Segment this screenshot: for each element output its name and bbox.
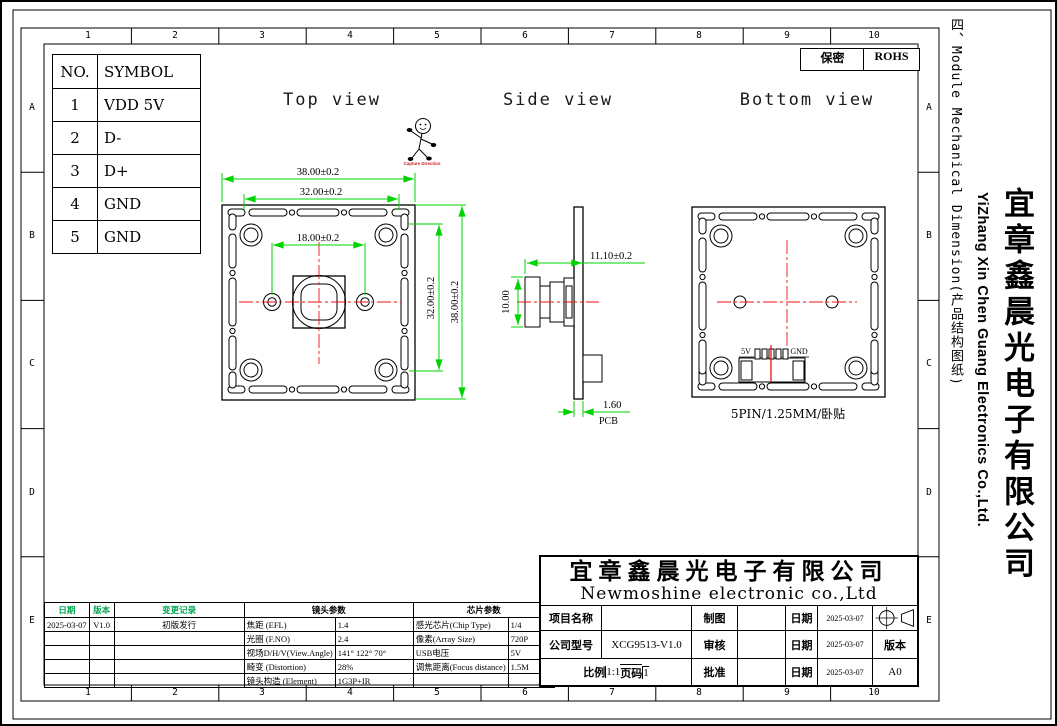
approved-label: 批准 xyxy=(691,658,737,685)
dim-top-width-inner: 32.00±0.2 xyxy=(300,187,343,198)
grid-row-label: C xyxy=(22,357,42,371)
revision-record: 初版发行 xyxy=(114,618,244,632)
model-label: 公司型号 xyxy=(541,630,601,658)
grid-col-label: 4 xyxy=(330,686,370,700)
grid-col-label: 6 xyxy=(505,29,545,43)
project-name-label: 项目名称 xyxy=(541,605,601,630)
pin-table: NO. SYMBOL 1 VDD 5V 2 D- 3 D+ 4 GND 5 GN… xyxy=(52,54,201,254)
dim-side-total-depth: 11.10±0.2 xyxy=(590,251,632,262)
checked-label: 审核 xyxy=(691,630,737,658)
date-value-3: 2025-03-07 xyxy=(817,658,872,685)
date-value-2: 2025-03-07 xyxy=(817,630,872,658)
scale-value: 1:1 xyxy=(605,666,620,678)
date-label-1: 日期 xyxy=(785,605,817,630)
dim-top-height-inner: 32.00±0.2 xyxy=(426,277,437,320)
grid-col-label: 9 xyxy=(767,686,807,700)
lens-param-label: 畸变 (Distortion) xyxy=(244,660,335,674)
revision-parameters-table: 日期 版本 变更记录 镜头参数 芯片参数 2025-03-07 V1.0 初版发… xyxy=(44,602,555,688)
chip-param-label xyxy=(413,674,508,688)
pin-table-row: 1 VDD 5V xyxy=(53,89,201,122)
connector-pin1-label: 5V xyxy=(741,347,751,356)
grid-row-label: B xyxy=(919,229,939,243)
capture-direction-label: Capture Direction xyxy=(404,161,441,166)
pin-symbol: GND xyxy=(98,221,201,254)
pin-symbol: GND xyxy=(98,188,201,221)
grid-col-label: 6 xyxy=(505,686,545,700)
pin-no: 5 xyxy=(53,221,98,254)
pin-no: 4 xyxy=(53,188,98,221)
lens-param-label: 视场D/H/V(View.Angle) xyxy=(244,646,335,660)
grid-col-label: 8 xyxy=(679,29,719,43)
pin-table-row: 5 GND xyxy=(53,221,201,254)
page-label: 页码 xyxy=(620,664,642,681)
bottom-view-title: Bottom view xyxy=(737,90,877,110)
grid-row-label: D xyxy=(919,486,939,500)
drawn-by-value xyxy=(737,605,785,630)
pin-symbol: D- xyxy=(98,122,201,155)
title-block: 宜章鑫晨光电子有限公司 Newmoshine electronic co.,Lt… xyxy=(539,555,919,687)
revision-date: 2025-03-07 xyxy=(45,618,90,632)
grid-col-label: 7 xyxy=(592,29,632,43)
version-value: A0 xyxy=(872,658,917,685)
first-angle-projection-icon xyxy=(873,606,917,630)
revision-version: V1.0 xyxy=(89,618,114,632)
scale-page-cell: 比例 1:1 页码 1 xyxy=(541,658,691,685)
pin-table-header-no: NO. xyxy=(53,55,98,89)
lens-param-value: 141° 122° 70° xyxy=(335,646,413,660)
grid-col-label: 5 xyxy=(417,29,457,43)
grid-row-label: A xyxy=(22,101,42,115)
section-title-vertical: 四、Module Mechanical Dimension(产品结构图纸) xyxy=(946,18,965,386)
grid-row-label: D xyxy=(22,486,42,500)
pin-no: 2 xyxy=(53,122,98,155)
grid-row-label: E xyxy=(22,614,42,628)
revision-date-header: 日期 xyxy=(45,603,90,618)
project-name-value xyxy=(601,605,691,630)
lens-param-label: 镜头构造 (Element) xyxy=(244,674,335,688)
chip-param-label: 调焦距离(Focus distance) xyxy=(413,660,508,674)
pin-table-row: 3 D+ xyxy=(53,155,201,188)
lens-param-value: 28% xyxy=(335,660,413,674)
lens-param-value: 1G3P+IR xyxy=(335,674,413,688)
pin-table-header-symbol: SYMBOL xyxy=(98,55,201,89)
revision-record-header: 变更记录 xyxy=(114,603,244,618)
company-name-en-vertical: YiZhang Xin Chen Guang Electronics Co.,L… xyxy=(974,192,990,527)
chip-param-label: 感光芯片(Chip Type) xyxy=(413,618,508,632)
pin-table-row: 4 GND xyxy=(53,188,201,221)
lens-param-value: 2.4 xyxy=(335,632,413,646)
chip-param-label: 像素(Array Size) xyxy=(413,632,508,646)
lens-params-header: 镜头参数 xyxy=(244,603,413,618)
date-label-2: 日期 xyxy=(785,630,817,658)
dim-top-width-outer: 38.00±0.2 xyxy=(297,167,340,178)
drawing-sheet: Capture Direction xyxy=(0,0,1057,726)
grid-row-label: B xyxy=(22,229,42,243)
grid-col-label: 3 xyxy=(242,686,282,700)
checked-value xyxy=(737,630,785,658)
model-value: XCG9513-V1.0 xyxy=(601,630,691,658)
grid-col-label: 10 xyxy=(854,686,894,700)
pin-no: 3 xyxy=(53,155,98,188)
pin-symbol: VDD 5V xyxy=(98,89,201,122)
company-name-en: Newmoshine electronic co.,Ltd xyxy=(580,585,877,604)
date-value-1: 2025-03-07 xyxy=(817,605,872,630)
grid-row-label: C xyxy=(919,357,939,371)
chip-params-header: 芯片参数 xyxy=(413,603,554,618)
grid-col-label: 8 xyxy=(679,686,719,700)
chip-param-label: USB电压 xyxy=(413,646,508,660)
capture-direction-figure: Capture Direction xyxy=(404,119,441,167)
projection-symbol xyxy=(872,605,917,630)
pin-no: 1 xyxy=(53,89,98,122)
dim-top-height-outer: 38.00±0.2 xyxy=(450,281,461,324)
grid-col-label: 1 xyxy=(68,686,108,700)
lens-param-label: 光圈 (F.NO) xyxy=(244,632,335,646)
grid-col-label: 3 xyxy=(242,29,282,43)
pcb-label: PCB xyxy=(599,416,618,427)
top-view: 38.00±0.2 32.00±0.2 18.00±0.2 32.00±0.2 … xyxy=(222,167,466,400)
approved-value xyxy=(737,658,785,685)
dim-top-hole-pitch: 18.00±0.2 xyxy=(297,233,340,244)
version-label: 版本 xyxy=(872,630,917,658)
grid-col-label: 2 xyxy=(155,29,195,43)
grid-col-label: 9 xyxy=(767,29,807,43)
grid-col-label: 5 xyxy=(417,686,457,700)
grid-col-label: 1 xyxy=(68,29,108,43)
dim-side-pcb-thickness: 1.60 xyxy=(603,400,621,411)
grid-col-label: 2 xyxy=(155,686,195,700)
rohs-badge: ROHS xyxy=(863,48,920,71)
dim-side-lens-height: 10.00 xyxy=(501,290,512,314)
top-view-title: Top view xyxy=(272,90,392,110)
side-view: 11.10±0.2 10.00 1.60 PCB xyxy=(501,207,645,427)
title-block-company: 宜章鑫晨光电子有限公司 Newmoshine electronic co.,Lt… xyxy=(541,557,917,605)
drawn-by-label: 制图 xyxy=(691,605,737,630)
side-view-title: Side view xyxy=(498,90,618,110)
bottom-view: 5V GND 5PIN/1.25MM/卧贴 xyxy=(692,207,885,421)
company-name-cn-vertical: 宜章鑫晨光电子有限公司 xyxy=(994,187,1039,583)
page-value: 1 xyxy=(642,666,649,679)
grid-col-label: 10 xyxy=(854,29,894,43)
revision-version-header: 版本 xyxy=(89,603,114,618)
grid-col-label: 4 xyxy=(330,29,370,43)
connector-note: 5PIN/1.25MM/卧贴 xyxy=(731,407,845,421)
scale-label: 比例 xyxy=(583,664,605,680)
grid-col-label: 7 xyxy=(592,686,632,700)
confidential-badge: 保密 xyxy=(800,48,865,71)
lens-param-value: 1.4 xyxy=(335,618,413,632)
company-name-cn: 宜章鑫晨光电子有限公司 xyxy=(570,559,889,585)
date-label-3: 日期 xyxy=(785,658,817,685)
grid-row-label: A xyxy=(919,101,939,115)
lens-param-label: 焦距 (EFL) xyxy=(244,618,335,632)
grid-row-label: E xyxy=(919,614,939,628)
pin-symbol: D+ xyxy=(98,155,201,188)
connector-pin5-label: GND xyxy=(790,347,808,356)
pin-table-row: 2 D- xyxy=(53,122,201,155)
